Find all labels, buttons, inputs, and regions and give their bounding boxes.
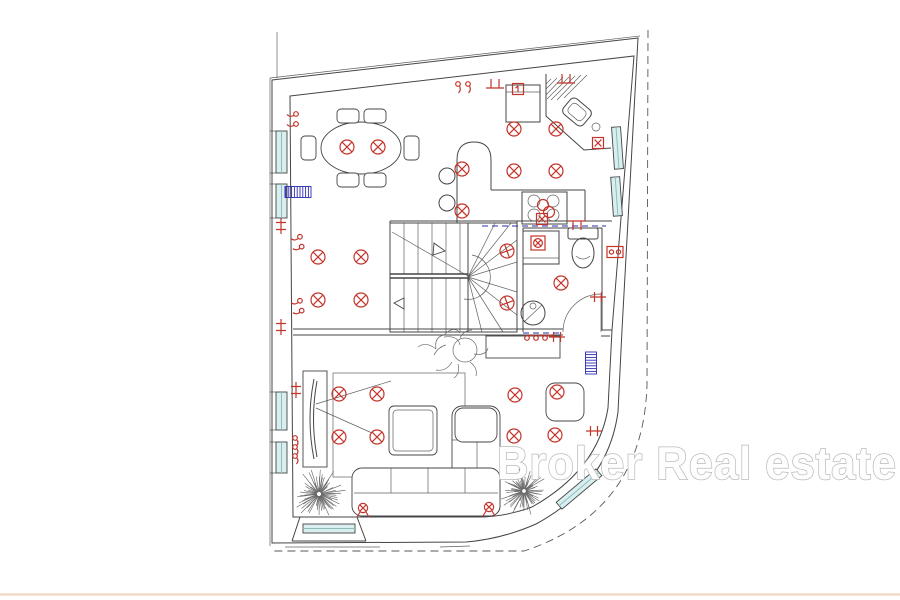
- ceiling-light-icon: [507, 122, 521, 136]
- ceiling-light-icon: [332, 430, 346, 444]
- toilet-bowl: [572, 238, 594, 268]
- wall-kitchen-bath: [390, 221, 612, 228]
- sofa-bottom-arm: [352, 468, 500, 516]
- ceiling-light-icon: [549, 164, 563, 178]
- sock-oo-icon: [607, 247, 623, 258]
- curl2-icon: [287, 112, 298, 127]
- ceiling-light-icon: [370, 430, 384, 444]
- ceiling-light-icon: [498, 294, 517, 313]
- kitchen-fixtures: [439, 74, 611, 224]
- floor-plan-page: Broker Real estate: [0, 0, 900, 600]
- tree-glyph: [297, 470, 346, 516]
- drainer-hatch: [546, 75, 587, 100]
- dining-chair: [404, 136, 419, 160]
- tv-cabinet: [303, 371, 327, 467]
- ceiling-light-icon: [354, 293, 368, 307]
- tick-cross-icon: [276, 218, 286, 234]
- sink-tap: [530, 303, 536, 309]
- corner-counter: [546, 74, 611, 150]
- tick-cross-icon: [590, 292, 606, 302]
- sink-detail: [524, 305, 542, 322]
- ceiling-light-icon: [311, 293, 325, 307]
- stair-direction-line: [392, 232, 468, 276]
- boundary-top: [270, 36, 640, 78]
- dining-table: [321, 122, 401, 174]
- tick-cross-icon: [276, 319, 286, 335]
- ceiling-light-icon: [507, 164, 521, 178]
- tick-tt-icon: [486, 79, 504, 88]
- ceiling-light-icon: [354, 250, 368, 264]
- toilet-detail: [576, 256, 590, 259]
- sock-x-icon: [593, 138, 604, 149]
- ceiling-light-icon: [311, 250, 325, 264]
- radiator-icon: [285, 187, 311, 198]
- window: [611, 177, 623, 217]
- tick-cross-icon: [586, 426, 602, 436]
- stove-mark: [538, 200, 549, 211]
- dining-chair: [364, 173, 386, 187]
- staircase: [390, 223, 517, 332]
- ceiling-light-icon: [554, 276, 568, 290]
- bathroom-door-arc: [563, 294, 601, 332]
- console-table: [486, 336, 560, 358]
- window-sill-ticks: [270, 131, 276, 473]
- bar-stool: [439, 195, 455, 211]
- fan-icon: [531, 236, 545, 250]
- dining-chair: [301, 136, 316, 160]
- curl3-icon: [293, 436, 298, 464]
- kitchen-faucet: [592, 123, 600, 131]
- curl2-icon: [291, 234, 305, 250]
- ceiling-light-icon: [370, 387, 384, 401]
- window: [612, 127, 624, 170]
- stair-arrow-up: [433, 243, 445, 255]
- radiator-icon: [586, 352, 597, 374]
- coffee-table: [389, 406, 437, 455]
- dining-chair: [364, 109, 386, 123]
- ceiling-light-icon: [332, 387, 346, 401]
- sofa-corner-cushion: [455, 408, 497, 442]
- plant-sketch: [418, 329, 488, 378]
- floor-plan-canvas: Broker Real estate: [0, 0, 900, 600]
- stair-winders: [468, 223, 517, 332]
- dining-chair: [337, 173, 359, 187]
- terrace-edge: [285, 546, 470, 547]
- ceiling-light-icon: [508, 388, 522, 402]
- stair-landing: [390, 274, 468, 278]
- wall-stair-bath: [390, 221, 602, 332]
- kitchen-sink: [561, 96, 594, 128]
- curl2-icon: [291, 298, 305, 314]
- curl2-icon: [456, 82, 471, 93]
- armchair: [546, 383, 584, 421]
- dining-chair: [337, 109, 359, 123]
- bar-stool: [439, 168, 455, 184]
- stair-arrow-down: [394, 298, 404, 309]
- watermark-text: Broker Real estate: [497, 437, 897, 489]
- ceiling-light-icon: [498, 242, 517, 261]
- door-jamb: [601, 330, 612, 336]
